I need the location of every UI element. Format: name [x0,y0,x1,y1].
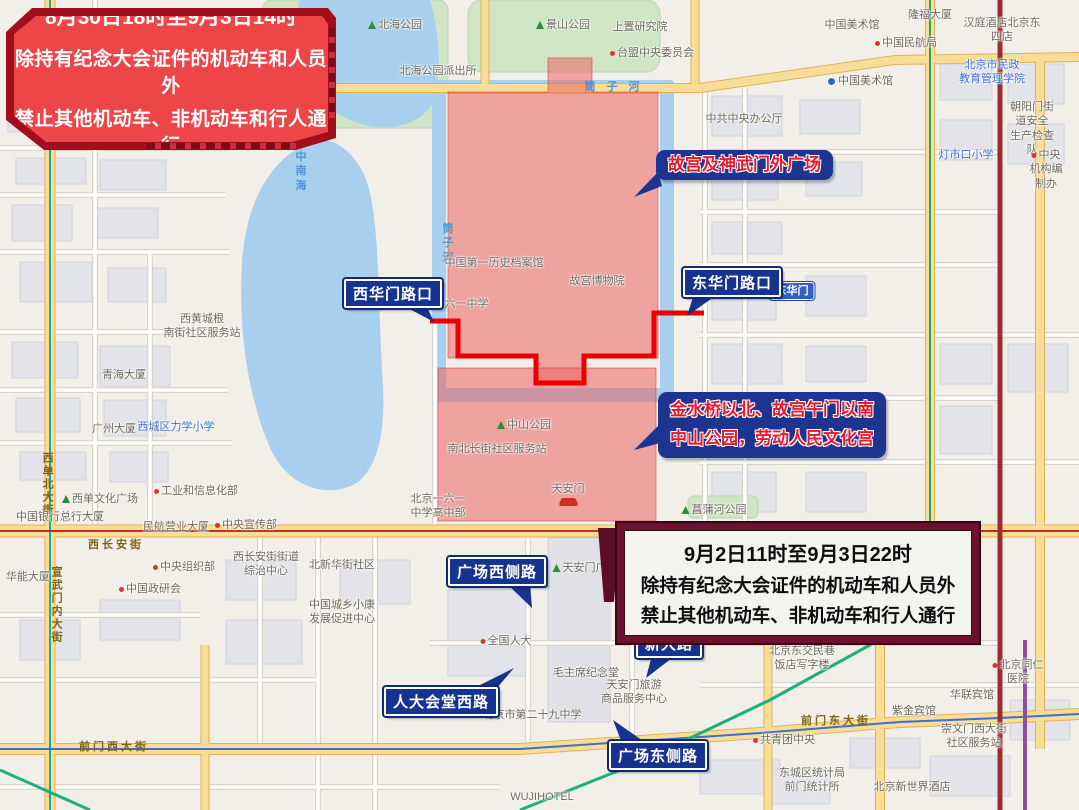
map-label: 中央宣传部 [215,518,277,532]
map-label: 北京同仁医院 [988,658,1049,687]
map-label: 隆福大厦 [908,8,952,22]
dot-red-icon [154,489,159,494]
map-label: 北海公园派出所 [400,64,477,78]
map-label: 景山公园 [536,18,590,32]
map-label: 西单文化广场 [62,492,138,506]
tree-icon [553,564,561,572]
map-label: 西城区力学小学 [138,420,215,434]
map-label: 民航营业大厦 [143,520,209,534]
map-label: 灯市口小学 [939,148,994,162]
map-label: 华能大厦 [6,570,50,584]
map-label: 华联宾馆 [950,688,994,702]
map-label: 天安门旅游 商品服务中心 [601,678,667,707]
map-label: 汉庭酒店北京东四店 [964,16,1041,45]
banner-frame-teeth-right [329,28,335,118]
map-label: 宣武门内大街 [49,566,63,644]
map-canvas[interactable]: 北海公园景山公园北海公园派出所上置研究院台盟中央委员会中国美术馆隆福大厦汉庭酒店… [0,0,1079,810]
banner-se-rule1: 除持有纪念大会证件的机动车和人员外 [628,572,968,598]
map-label: 天安门 [552,482,585,505]
map-label: 北新华街社区 [309,558,375,572]
dot-red-icon [610,51,615,56]
banner-se-period: 9月2日11时至9月3日22时 [628,538,968,567]
map-label: 北京东交民巷 饭店写字楼 [769,644,835,673]
tree-icon [536,21,544,29]
map-label: 广州大厦 [92,422,136,436]
banner-se-rule2: 禁止其他机动车、非机动车和行人通行 [628,602,968,628]
road-callout-gc-east: 广场东侧路 [609,741,707,770]
map-label: 中 南 海 [296,150,311,193]
tree-icon [497,421,505,429]
map-label: 西长安街街道 综治中心 [233,550,299,579]
map-label: 西单北大街 [40,452,54,517]
road-callout-donghuamen: 东华门路口 [683,268,781,297]
banner-frame-teeth [146,143,296,149]
map-label: 台盟中央委员会 [610,46,694,60]
map-label: 前门东大街 [801,714,871,728]
map-label: 北京一六一 中学高中部 [411,492,466,521]
map-label: 全国人大 [481,634,532,648]
map-label: 故宫博物院 [570,274,625,288]
map-label: 中央组织部 [153,560,215,574]
map-label: 中山公园 [497,418,551,432]
map-label: 前门西大街 [79,740,149,754]
map-label: 工业和信息化部 [154,484,238,498]
dot-red-icon [753,738,758,743]
map-label: 共青团中央 [753,733,815,747]
map-label: 菖蒲河公园 [682,503,747,517]
tree-icon [62,495,70,503]
map-label: 中国银行总行大厦 [16,510,104,524]
dot-red-icon [993,663,998,668]
map-label: 中国城乡小康 发展促进中心 [309,598,375,627]
restriction-banner-northwest: 8月30日18时至9月3日14时 除持有纪念大会证件的机动车和人员外 禁止其他机… [6,8,336,150]
banner-nw-rule1: 除持有纪念大会证件的机动车和人员外 [14,44,328,98]
dot-red-icon [153,565,158,570]
dot-red-icon [119,587,124,592]
map-label: 中共中央办公厅 [706,112,783,126]
map-label: 南北长街社区服务站 [448,442,547,456]
map-label: 中国美术馆 [825,18,880,32]
tree-icon [682,506,690,514]
map-label: 紫金宾馆 [892,704,936,718]
map-label: 筒 子 河 [584,80,643,94]
map-label: 东城区统计局 前门统计所 [779,766,845,795]
map-label: 上置研究院 [613,20,668,34]
map-label: 中国政研会 [119,582,181,596]
dot-red-icon [481,639,486,644]
map-label: 西长安街 [88,538,144,552]
road-callout-xihuamen: 西华门路口 [344,279,442,308]
map-label: 中国美术馆 [827,74,893,88]
map-label: 中国民航局 [875,36,937,50]
map-label: WUJIHOTEL [510,790,574,804]
map-label: 中央机构编制办 [1030,148,1063,191]
restricted-zone-label-jinshui: 金水桥以北、故宫午门以南 中山公园，劳动人民文化宫 [658,392,886,458]
map-label: 北海公园 [368,18,422,32]
restricted-zone-label-palace: 故宫及神武门外广场 [656,150,833,180]
dot-red-icon [1032,153,1037,158]
map-label: 天安门广场 [553,561,618,575]
tree-icon [368,21,376,29]
map-label: 崇文门西大街 社区服务站 [941,722,1007,751]
map-label: 北京新世界酒店 [874,780,951,794]
restriction-banner-southeast: 9月2日11时至9月3日22时 除持有纪念大会证件的机动车和人员外 禁止其他机动… [617,523,979,643]
tiananmen-gate-icon [560,498,576,505]
dot-blue-icon [827,77,836,86]
road-callout-renda-west: 人大会堂西路 [384,687,498,716]
dot-red-icon [875,41,880,46]
map-label: 北京市民政 教育管理学院 [959,58,1025,87]
map-label: 中国第一历史档案馆 [445,256,544,270]
road-callout-gc-west: 广场西侧路 [448,557,546,586]
map-label: 青海大厦 [102,368,146,382]
map-label: 西黄城根 南街社区服务站 [164,312,241,341]
dot-red-icon [215,523,220,528]
